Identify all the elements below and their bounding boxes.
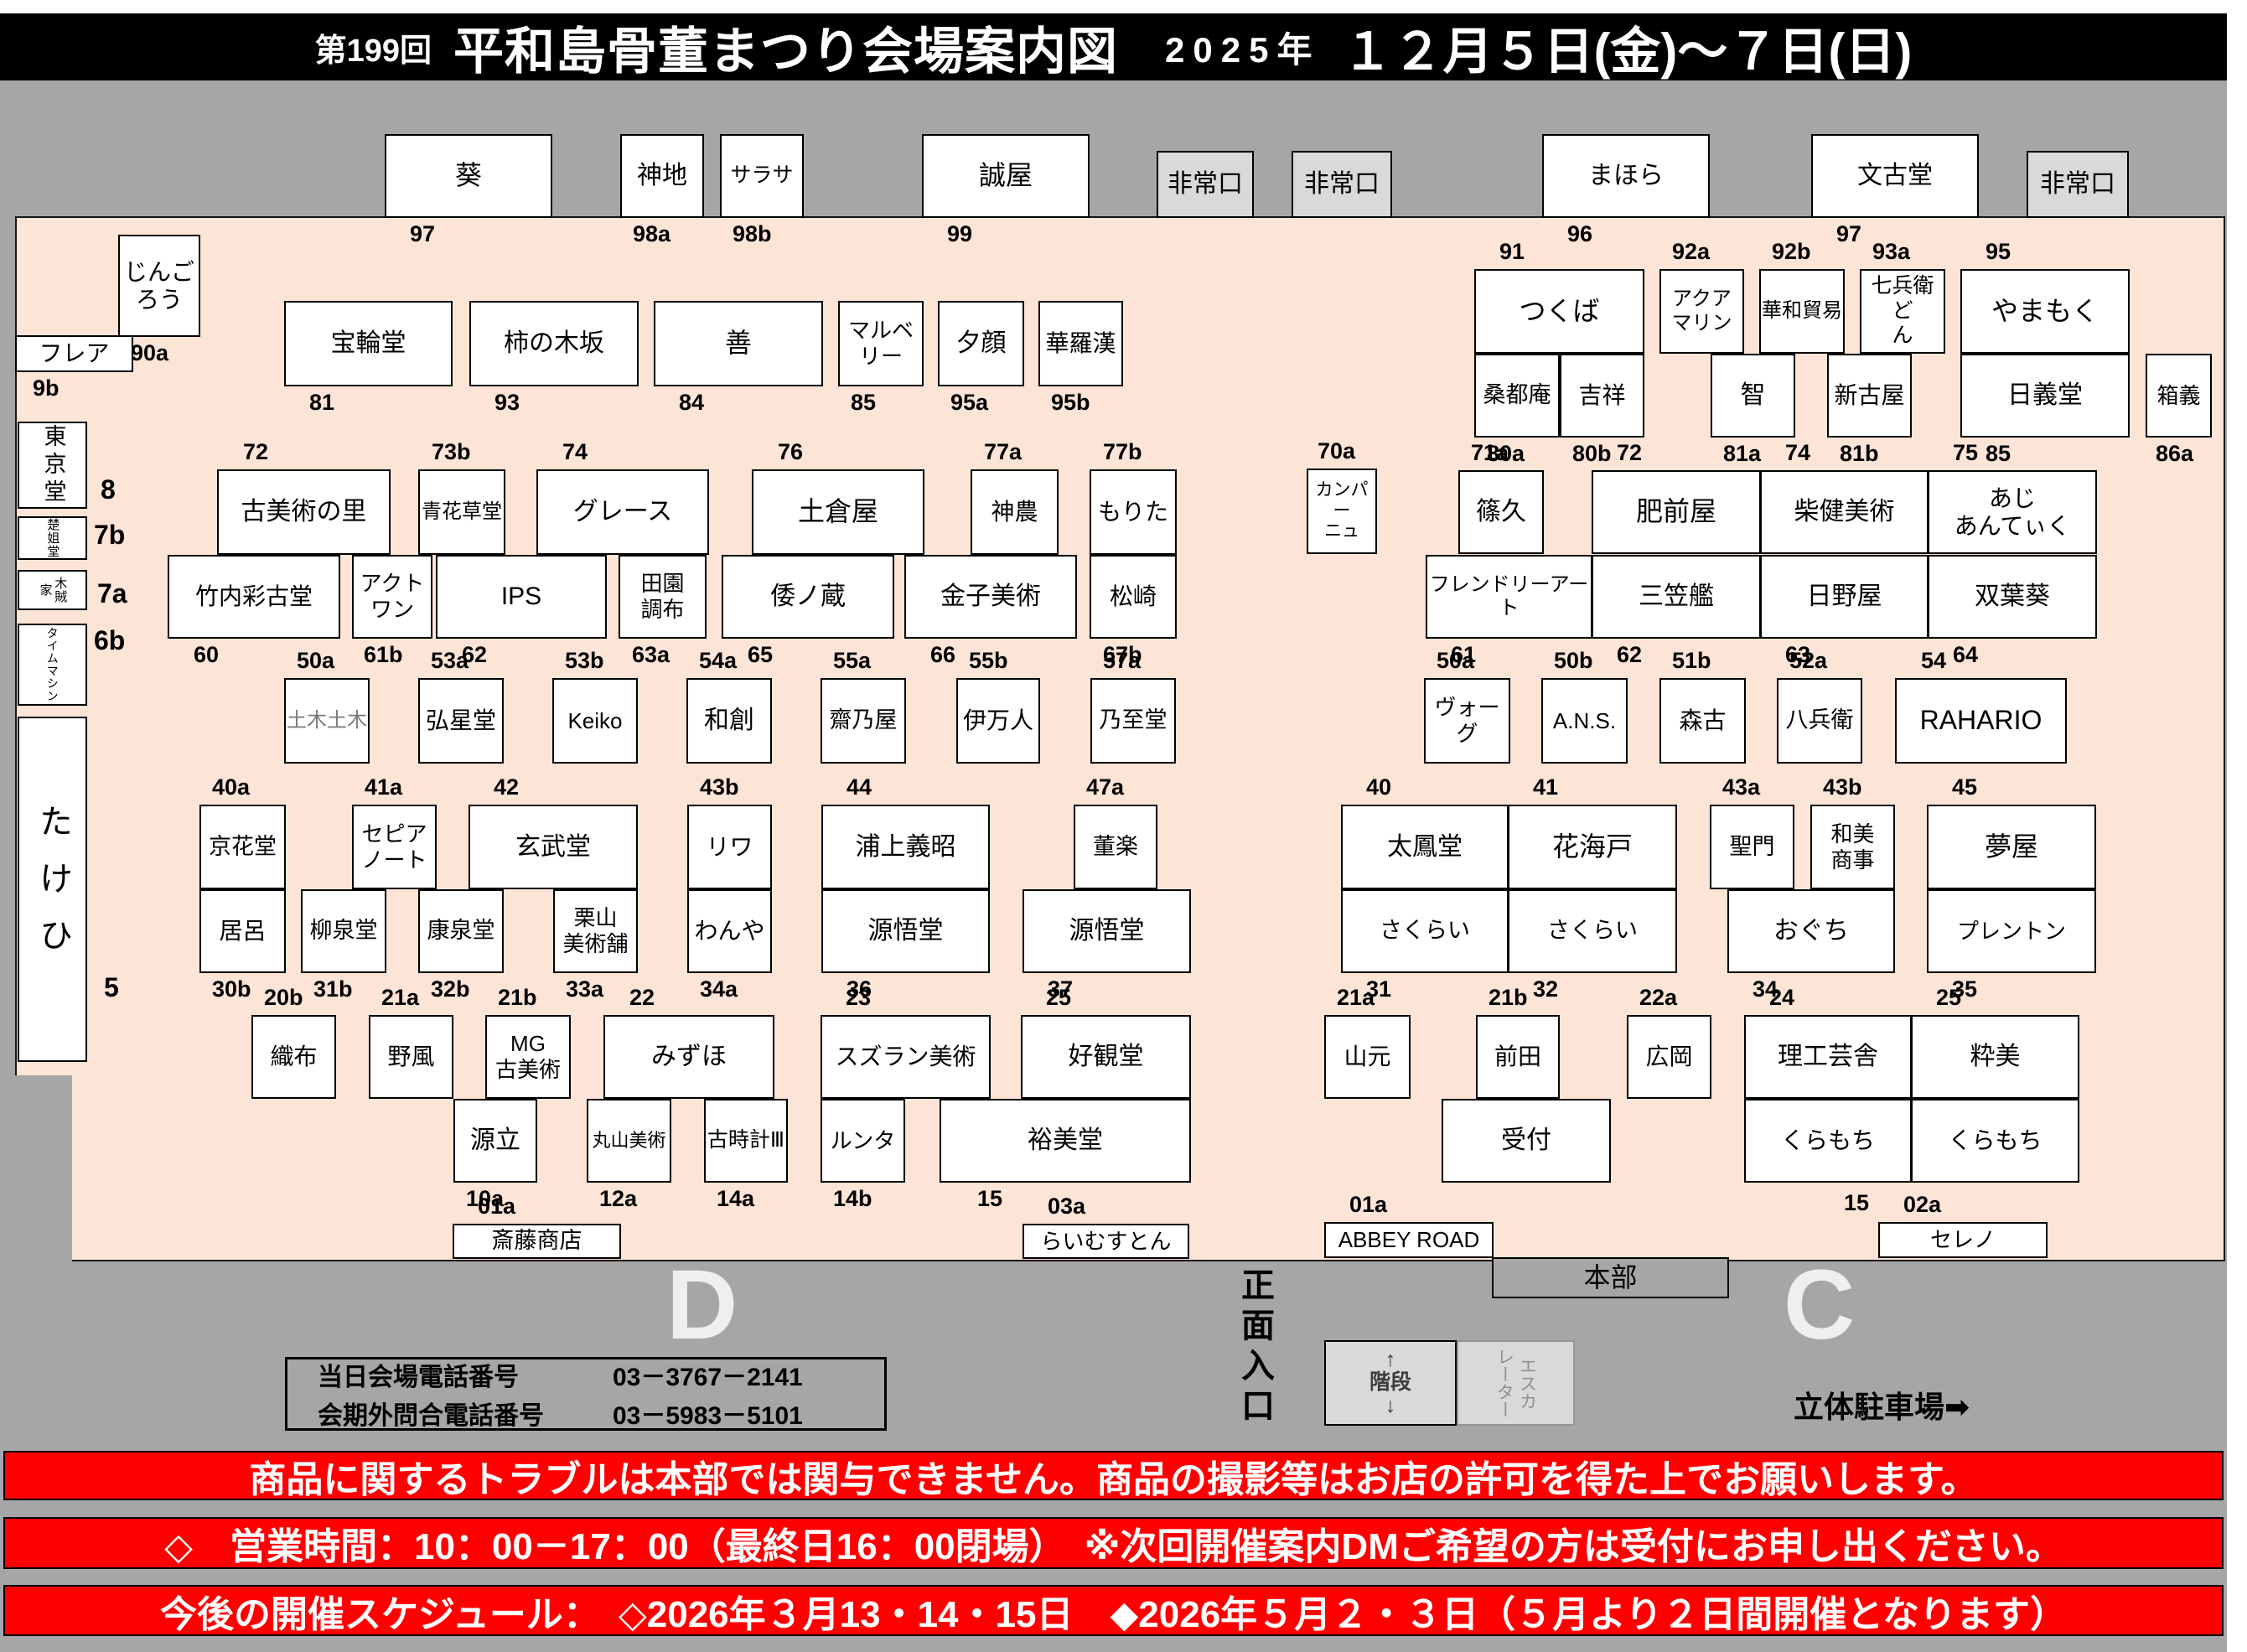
booth-number: 93	[494, 390, 520, 416]
booth-label: 聖門	[1730, 834, 1775, 861]
booth-label: マルベ リー	[848, 318, 914, 369]
booth-number: 34a	[700, 976, 738, 1002]
booth: 斎藤商店	[453, 1224, 621, 1259]
booth-label: 丸山美術	[592, 1130, 665, 1152]
booth-number: 80b	[1572, 441, 1612, 467]
booth: じんご ろう	[118, 235, 200, 337]
booth: 山元	[1324, 1015, 1411, 1099]
booth: 柴健美術	[1760, 470, 1929, 554]
booth-number: 14a	[717, 1186, 754, 1212]
booth: あじ あんてぃく	[1928, 470, 2097, 554]
booth-label: カンパー ニュ	[1308, 480, 1375, 542]
booth-number: 51b	[1672, 648, 1711, 674]
booth-number: 43b	[1823, 774, 1862, 800]
venue-map-page: 第199回 平和島骨董まつり会場案内図 2025年 １２月５日(金)～７日(日)…	[0, 0, 2247, 1652]
booth-label: 吉祥	[1578, 381, 1625, 409]
booth-label: 源悟堂	[868, 916, 944, 945]
booth-label: アクト ワン	[360, 571, 425, 622]
booth: 弘星堂	[418, 678, 504, 764]
phone-row-1: 当日会場電話番号 03－3767－2141	[318, 1356, 884, 1393]
booth-label: やまもく	[1991, 296, 2099, 328]
booth-label: 日野屋	[1807, 582, 1882, 611]
booth-label: グレース	[573, 497, 673, 526]
booth-number: 62	[1617, 642, 1642, 668]
booth: 日野屋	[1760, 555, 1929, 639]
booth-label: 森古	[1679, 707, 1726, 734]
booth: 倭ノ蔵	[722, 555, 894, 639]
booth: 青花草堂	[418, 469, 505, 555]
booth: さくらい	[1508, 889, 1677, 973]
booth: 文古堂	[1811, 134, 1979, 218]
booth: 土倉屋	[752, 469, 924, 555]
booth: 伊万人	[956, 678, 1040, 764]
booth-label: あじ あんてぃく	[1954, 484, 2071, 540]
booth: 浦上義昭	[821, 805, 990, 889]
booth-label: 木賊家	[38, 572, 67, 608]
booth: アクア マリン	[1659, 269, 1744, 354]
booth-number: 85	[1986, 441, 2011, 467]
booth-label: 栗山 美術舗	[562, 905, 628, 956]
booth-label: 楚姐堂	[45, 518, 60, 558]
booth-label: 和創	[704, 706, 754, 735]
booth-label: 太鳳堂	[1387, 832, 1463, 862]
booth: 土木土木	[284, 678, 370, 764]
booth-label: 篠久	[1476, 497, 1526, 526]
phone-info-box: 当日会場電話番号 03－3767－2141 会期外問合電話番号 03－5983－…	[285, 1357, 887, 1431]
booth-label: 粋美	[1970, 1042, 2021, 1071]
booth: 古美術の里	[217, 469, 391, 555]
zone-d-label: D	[666, 1256, 738, 1354]
booth-label: 三笠艦	[1639, 582, 1714, 611]
booth-label: 野風	[387, 1043, 434, 1070]
booth-number: 81a	[1723, 441, 1761, 467]
booth-number: 50b	[1554, 648, 1593, 674]
booth: 裕美堂	[940, 1099, 1191, 1183]
booth: 篠久	[1458, 470, 1544, 554]
booth-number: 24	[1769, 985, 1794, 1011]
booth-label: 理工芸舎	[1778, 1042, 1878, 1071]
booth: A.N.S.	[1541, 678, 1628, 764]
notice-banner-schedule: 今後の開催スケジュール： ◇2026年３月13・14・15日 ◆2026年５月２…	[3, 1585, 2224, 1636]
booth-number: 84	[679, 390, 704, 416]
booth: 源悟堂	[821, 889, 990, 973]
escalator-box: エスカ レーター	[1457, 1340, 1575, 1426]
booth-label: 華和貿易	[1762, 299, 1842, 323]
booth-label: ルンタ	[831, 1128, 895, 1154]
booth: くらもち	[1744, 1099, 1912, 1183]
booth-label: 柴健美術	[1794, 497, 1895, 526]
booth-label: 八兵衛	[1786, 707, 1854, 734]
booth: つくば	[1474, 269, 1644, 354]
booth: 源立	[453, 1099, 537, 1183]
booth-label: 伊万人	[963, 707, 1033, 734]
notice-banner-hours: ◇ 営業時間：10：00－17：00（最終日16：00閉場） ※次回開催案内DM…	[3, 1517, 2224, 1569]
emergency-exit: 非常口	[1157, 151, 1254, 218]
booth-label: 金子美術	[940, 582, 1041, 611]
booth: IPS	[436, 555, 607, 639]
booth-label: 古美術の里	[241, 497, 367, 526]
booth: 受付	[1442, 1099, 1611, 1183]
booth-label: 肥前屋	[1636, 496, 1716, 528]
booth-number: 97	[1836, 221, 1861, 247]
aisle-number: 6b	[94, 625, 125, 656]
booth-label: 七兵衛ど ん	[1861, 274, 1944, 349]
booth-number: 60	[194, 642, 219, 668]
booth: 花海戸	[1508, 805, 1677, 889]
booth: 乃至堂	[1090, 678, 1176, 764]
booth: 織布	[251, 1015, 336, 1099]
booth-label: 前田	[1494, 1043, 1541, 1070]
booth-number: 12a	[599, 1186, 637, 1212]
booth-number: 81	[309, 390, 334, 416]
booth-number: 50a	[1437, 648, 1474, 674]
booth-number: 74	[1785, 440, 1810, 466]
booth-number: 02a	[1903, 1192, 1941, 1218]
booth-number: 40	[1366, 774, 1391, 800]
booth-label: つくば	[1519, 296, 1599, 328]
booth-label: 斎藤商店	[492, 1228, 582, 1255]
booth: 桑都庵	[1474, 354, 1560, 438]
booth-number: 74	[562, 439, 588, 465]
booth: マルベ リー	[838, 301, 924, 386]
booth: もりた	[1090, 469, 1177, 555]
booth: 楚姐堂	[18, 516, 87, 560]
booth-label: 誠屋	[979, 160, 1033, 192]
booth: 太鳳堂	[1341, 805, 1509, 889]
booth: 理工芸舎	[1744, 1015, 1912, 1099]
booth: グレース	[536, 469, 709, 555]
booth-label: じんご ろう	[124, 258, 194, 313]
phone-row-2: 会期外問合電話番号 03－5983－5101	[318, 1395, 884, 1432]
emergency-exit: 非常口	[1292, 151, 1392, 218]
phone-number-2: 03－5983－5101	[613, 1395, 803, 1432]
booth-label: 善	[725, 328, 752, 360]
booth: 八兵衛	[1777, 678, 1862, 764]
aisle-number: 7b	[94, 520, 125, 551]
booth-number: 55b	[969, 648, 1008, 674]
booth: さくらい	[1341, 889, 1509, 973]
booth-label: 双葉葵	[1975, 582, 2050, 611]
booth: 聖門	[1710, 805, 1794, 889]
booth: たけひ	[18, 717, 87, 1062]
main-entrance-label: 正面入口	[1230, 1267, 1279, 1428]
booth-label: 裕美堂	[1028, 1126, 1103, 1155]
booth: フレンドリーアート	[1426, 555, 1592, 639]
booth-number: 93a	[1872, 239, 1910, 265]
booth-number: 53b	[565, 648, 604, 674]
booth-label: アクア マリン	[1672, 287, 1732, 335]
booth-number: 63a	[632, 642, 670, 668]
booth-number: 64	[1953, 642, 1978, 668]
booth-label: RAHARIO	[1920, 705, 2042, 737]
booth-label: 宝輪堂	[331, 329, 406, 358]
booth-number: 95a	[950, 390, 988, 416]
booth-number: 40a	[212, 774, 250, 800]
booth-number: 01a	[478, 1194, 515, 1220]
booth: 齋乃屋	[821, 678, 906, 764]
booth-number: 41	[1533, 774, 1558, 800]
booth-label: 文古堂	[1857, 161, 1933, 190]
booth-label: 本部	[1583, 1262, 1637, 1294]
booth-number: 30b	[212, 976, 251, 1002]
aisle-number: 7a	[97, 578, 127, 609]
booth-label: 織布	[270, 1043, 317, 1070]
booth-label: 花海戸	[1552, 831, 1633, 863]
booth: くらもち	[1911, 1099, 2079, 1183]
booth: 七兵衛ど ん	[1860, 269, 1945, 354]
booth: ヴォーグ	[1424, 678, 1510, 764]
booth: 松崎	[1090, 555, 1177, 639]
booth-number: 97	[410, 221, 435, 247]
booth-number: 66	[930, 642, 955, 668]
booth-label: 神地	[637, 161, 687, 190]
booth-number: 25	[1936, 985, 1961, 1011]
booth: プレントン	[1927, 889, 2096, 973]
booth: 金子美術	[904, 555, 1077, 639]
booth: ABBEY ROAD	[1324, 1222, 1494, 1258]
booth-label: ABBEY ROAD	[1338, 1227, 1480, 1253]
escalator-label-part1: エスカ	[1519, 1357, 1536, 1410]
booth-label: フレア	[39, 339, 109, 367]
booth-number: 92b	[1772, 239, 1811, 265]
booth-number: 54	[1921, 648, 1946, 674]
booth-number: 32b	[431, 976, 470, 1002]
booth-number: 65	[748, 642, 773, 668]
booth: 居呂	[199, 889, 286, 973]
booth-label: MG 古美術	[495, 1031, 561, 1082]
booth: 森古	[1659, 678, 1746, 764]
booth: 和創	[686, 678, 772, 764]
booth-label: 華羅漢	[1045, 329, 1116, 357]
booth: 柳泉堂	[301, 889, 386, 973]
booth: 丸山美術	[587, 1099, 671, 1183]
booth-label: 松崎	[1110, 583, 1157, 610]
booth-label: 非常口	[2040, 169, 2115, 199]
booth-number: 81b	[1840, 441, 1879, 467]
booth-number: 52a	[1789, 648, 1827, 674]
booth: 三笠艦	[1592, 555, 1761, 639]
booth-label: たけひ	[33, 804, 72, 975]
booth-label: ヴォーグ	[1426, 695, 1509, 746]
booth: 京花堂	[199, 805, 286, 889]
booth-label: まほら	[1588, 161, 1664, 190]
booth-label: リワ	[706, 833, 753, 861]
booth-label: 董楽	[1093, 834, 1138, 861]
booth: 新古屋	[1827, 354, 1912, 438]
booth-number: 21b	[498, 985, 537, 1011]
aisle-number: 15	[1844, 1190, 1869, 1216]
booth-number: 33a	[566, 976, 603, 1002]
booth-number: 57a	[1103, 648, 1141, 674]
booth: RAHARIO	[1895, 678, 2067, 764]
booth-label: セピア ノート	[361, 821, 427, 873]
booth-label: 居呂	[219, 917, 266, 945]
booth: スズラン美術	[821, 1015, 991, 1099]
zone-c-label: C	[1784, 1256, 1855, 1354]
booth-number: 70a	[1318, 438, 1355, 464]
booth-number: 95b	[1051, 390, 1090, 416]
booth-number: 21b	[1489, 985, 1528, 1011]
booth-number: 53a	[431, 648, 469, 674]
booth: フレア	[15, 335, 133, 372]
booth: 華羅漢	[1038, 301, 1123, 386]
booth-number: 90a	[131, 340, 168, 366]
booth: 肥前屋	[1592, 470, 1761, 554]
booth-label: 齋乃屋	[830, 707, 898, 734]
booth-label: 夢屋	[1985, 831, 2038, 863]
booth-label: 青花草堂	[422, 500, 502, 524]
booth-label: プレントン	[1957, 919, 2066, 945]
booth: カンパー ニュ	[1307, 469, 1377, 554]
booth: 玄武堂	[469, 805, 638, 889]
booth-number: 72	[1617, 440, 1642, 466]
booth-label: A.N.S.	[1553, 708, 1616, 734]
booth-label: 好観堂	[1069, 1042, 1144, 1071]
booth-label: 田園 調布	[640, 571, 684, 622]
booth-number: 96	[1567, 221, 1592, 247]
booth: やまもく	[1960, 269, 2130, 354]
booth: 竹内彩古堂	[168, 555, 340, 639]
booth: アクト ワン	[352, 555, 432, 639]
booth-label: 源立	[470, 1126, 520, 1155]
booth-label: 新古屋	[1834, 381, 1904, 409]
booth: 源悟堂	[1023, 889, 1191, 973]
booth: 善	[654, 301, 823, 386]
booth-number: 98a	[633, 221, 670, 247]
escalator-label-part2: レーター	[1496, 1348, 1514, 1418]
booth-number: 45	[1952, 774, 1977, 800]
booth: MG 古美術	[485, 1015, 571, 1099]
booth: 野風	[369, 1015, 453, 1099]
booth: 吉祥	[1560, 354, 1644, 438]
booth-label: 京花堂	[209, 834, 277, 861]
booth-label: 康泉堂	[427, 918, 495, 945]
booth-label: くらもち	[1781, 1126, 1875, 1154]
booth-number: 91	[1499, 239, 1525, 265]
booth-number: 75	[1953, 440, 1978, 466]
booth-number: 21a	[1337, 985, 1375, 1011]
booth-number: 77a	[984, 439, 1022, 465]
booth: わんや	[687, 889, 772, 973]
booth-number: 73b	[432, 439, 471, 465]
booth-label: 非常口	[1304, 169, 1380, 199]
booth: 神農	[971, 469, 1059, 555]
booth: 広岡	[1627, 1015, 1711, 1099]
booth: 箱義	[2146, 354, 2212, 438]
booth: 誠屋	[922, 134, 1090, 218]
booth-number: 01a	[1349, 1192, 1387, 1218]
booth-number: 42	[494, 774, 519, 800]
booth-number: 23	[846, 985, 871, 1011]
booth: 古時計Ⅲ	[704, 1099, 788, 1183]
booth: 柿の木坂	[469, 301, 639, 386]
booth-number: 55a	[833, 648, 871, 674]
booth-number: 47a	[1086, 774, 1124, 800]
booth: リワ	[687, 805, 772, 889]
booth-label: 日義堂	[2007, 381, 2083, 410]
booth: 華和貿易	[1759, 269, 1845, 354]
phone-number-1: 03－3767－2141	[613, 1356, 803, 1393]
booth-label: 竹内彩古堂	[195, 583, 313, 610]
parking-label: 立体駐車場➡	[1794, 1383, 1970, 1427]
booth-number: 71a	[1471, 440, 1509, 466]
booth: 木賊家	[18, 570, 87, 610]
booth-label: 土倉屋	[798, 496, 878, 528]
booth-number: 9b	[33, 375, 60, 401]
booth-label: 夕顔	[956, 329, 1007, 358]
booth-number: 77b	[1103, 439, 1142, 465]
booth-label: くらもち	[1948, 1126, 2042, 1154]
booth-label: スズラン美術	[835, 1043, 976, 1070]
booth-number: 31b	[313, 976, 353, 1002]
booth: 栗山 美術舗	[553, 889, 638, 973]
booth-number: 54a	[699, 648, 737, 674]
aisle-number: 5	[104, 972, 119, 1003]
booth: セレノ	[1878, 1222, 2048, 1258]
booth-number: 22a	[1639, 985, 1677, 1011]
booth: 本部	[1492, 1257, 1729, 1298]
booth-label: サラサ	[730, 163, 793, 189]
booth-label: おぐち	[1773, 916, 1849, 945]
booth-label: 柿の木坂	[504, 329, 604, 358]
booth: 双葉葵	[1928, 555, 2097, 639]
booth-label: 倭ノ蔵	[770, 582, 846, 611]
booth: 康泉堂	[418, 889, 504, 973]
booth-label: 葵	[455, 160, 482, 192]
booth-label: 浦上義昭	[856, 832, 956, 862]
booth: 董楽	[1074, 805, 1157, 889]
booth-number: 43b	[700, 774, 739, 800]
booth-label: 山元	[1344, 1043, 1390, 1070]
booth-number: 20b	[264, 985, 303, 1011]
booth-number: 92a	[1672, 239, 1710, 265]
booth-number: 15	[977, 1186, 1002, 1212]
booth-label: 箱義	[2156, 383, 2200, 409]
booth-number: 44	[847, 774, 872, 800]
booth-label: さくらい	[1380, 918, 1470, 945]
booth-number: 95	[1986, 239, 2011, 265]
booth: まほら	[1542, 134, 1710, 218]
booth-number: 21a	[381, 985, 419, 1011]
notice-banner-trouble: 商品に関するトラブルは本部では関与できません。商品の撮影等はお店の許可を得た上で…	[3, 1451, 2224, 1500]
booth-label: 古時計Ⅲ	[707, 1128, 784, 1153]
booth-number: 86a	[2156, 441, 2193, 467]
booth-label: 東京堂	[39, 424, 66, 507]
booth-number: 85	[851, 390, 876, 416]
aisle-number: 8	[101, 474, 116, 505]
booth-label: 玄武堂	[515, 832, 591, 862]
booth-label: セレノ	[1930, 1227, 1996, 1253]
phone-label-1: 当日会場電話番号	[318, 1356, 613, 1393]
booth: 東京堂	[18, 422, 87, 509]
booth-number: 61b	[364, 642, 403, 668]
booth-label: 弘星堂	[426, 707, 496, 734]
booth: みずほ	[603, 1015, 774, 1099]
booth-label: 柳泉堂	[310, 918, 378, 945]
booth: サラサ	[720, 134, 804, 218]
booth-number: 25	[1046, 985, 1071, 1011]
phone-label-2: 会期外問合電話番号	[318, 1395, 613, 1432]
booth-number: 50a	[297, 648, 334, 674]
booth-number: 99	[947, 221, 972, 247]
booth-label: 神農	[991, 498, 1038, 526]
booth: 前田	[1476, 1015, 1560, 1099]
booth: 夕顔	[938, 301, 1024, 386]
booth: セピア ノート	[352, 805, 437, 889]
booth: 田園 調布	[619, 555, 707, 639]
booth-label: 源悟堂	[1069, 916, 1145, 945]
booth: ルンタ	[821, 1099, 905, 1183]
